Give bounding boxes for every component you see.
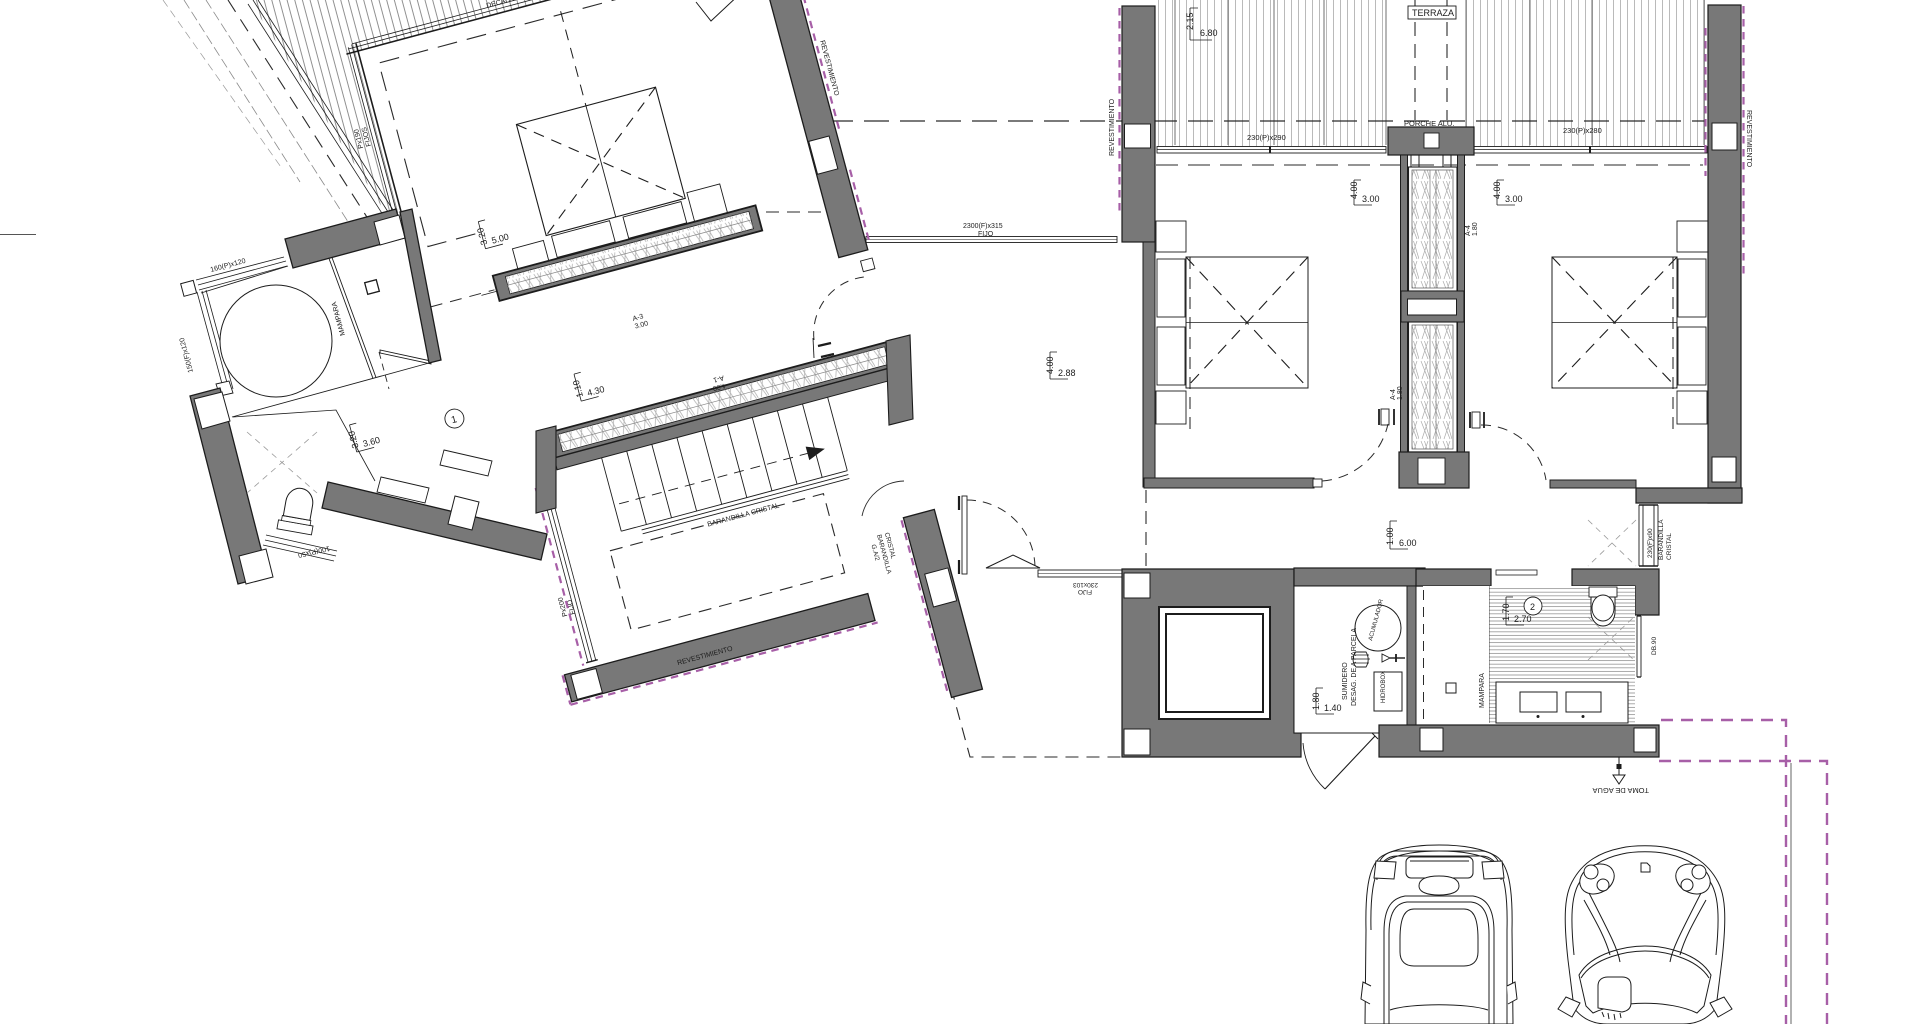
svg-text:3.00: 3.00 xyxy=(1362,194,1380,204)
svg-text:230(F)x90: 230(F)x90 xyxy=(1647,528,1654,558)
svg-text:2.70: 2.70 xyxy=(1514,614,1532,624)
svg-text:FIJO: FIJO xyxy=(978,231,994,238)
svg-text:DB.90: DB.90 xyxy=(1651,637,1658,655)
svg-text:1.80: 1.80 xyxy=(1472,222,1479,236)
svg-text:HIDROBOX: HIDROBOX xyxy=(1381,671,1387,703)
svg-text:4.00: 4.00 xyxy=(1349,181,1359,199)
svg-text:230(P)x290: 230(P)x290 xyxy=(1247,133,1286,142)
svg-text:4.00: 4.00 xyxy=(1492,181,1502,199)
svg-text:BARANDILLA: BARANDILLA xyxy=(1658,519,1665,560)
svg-text:TOMA DE AGUA: TOMA DE AGUA xyxy=(1592,786,1649,795)
svg-text:A-4: A-4 xyxy=(1390,389,1397,400)
svg-text:FIJO: FIJO xyxy=(1078,588,1092,595)
svg-text:REVESTIMIENTO: REVESTIMIENTO xyxy=(1745,110,1752,168)
svg-text:2.15: 2.15 xyxy=(1185,12,1195,30)
svg-text:4.00: 4.00 xyxy=(1045,356,1055,374)
svg-text:MAMPARA: MAMPARA xyxy=(1479,673,1486,708)
svg-text:2.88: 2.88 xyxy=(1058,368,1076,378)
svg-text:1.80: 1.80 xyxy=(1311,692,1321,710)
svg-text:2300(F)x315: 2300(F)x315 xyxy=(963,223,1003,230)
svg-text:1.80: 1.80 xyxy=(1397,386,1404,400)
svg-text:6.00: 6.00 xyxy=(1399,538,1417,548)
svg-text:A-4: A-4 xyxy=(1465,225,1472,236)
svg-text:1.00: 1.00 xyxy=(1385,527,1395,545)
svg-text:1.40: 1.40 xyxy=(1324,703,1342,713)
svg-text:REVESTIMIENTO: REVESTIMIENTO xyxy=(1109,98,1116,156)
svg-text:6.80: 6.80 xyxy=(1200,28,1218,38)
svg-text:DESAG. DE A PARCELA: DESAG. DE A PARCELA xyxy=(1351,628,1358,706)
svg-text:3.00: 3.00 xyxy=(1505,194,1523,204)
svg-text:230x103: 230x103 xyxy=(1073,581,1098,588)
svg-text:1.70: 1.70 xyxy=(1501,603,1511,621)
svg-text:SUMIDERO: SUMIDERO xyxy=(1342,662,1349,700)
svg-text:2: 2 xyxy=(1530,602,1535,612)
svg-text:CRISTAL: CRISTAL xyxy=(1666,533,1673,560)
svg-text:TERRAZA: TERRAZA xyxy=(1412,8,1454,18)
svg-text:230(P)x280: 230(P)x280 xyxy=(1563,126,1602,135)
